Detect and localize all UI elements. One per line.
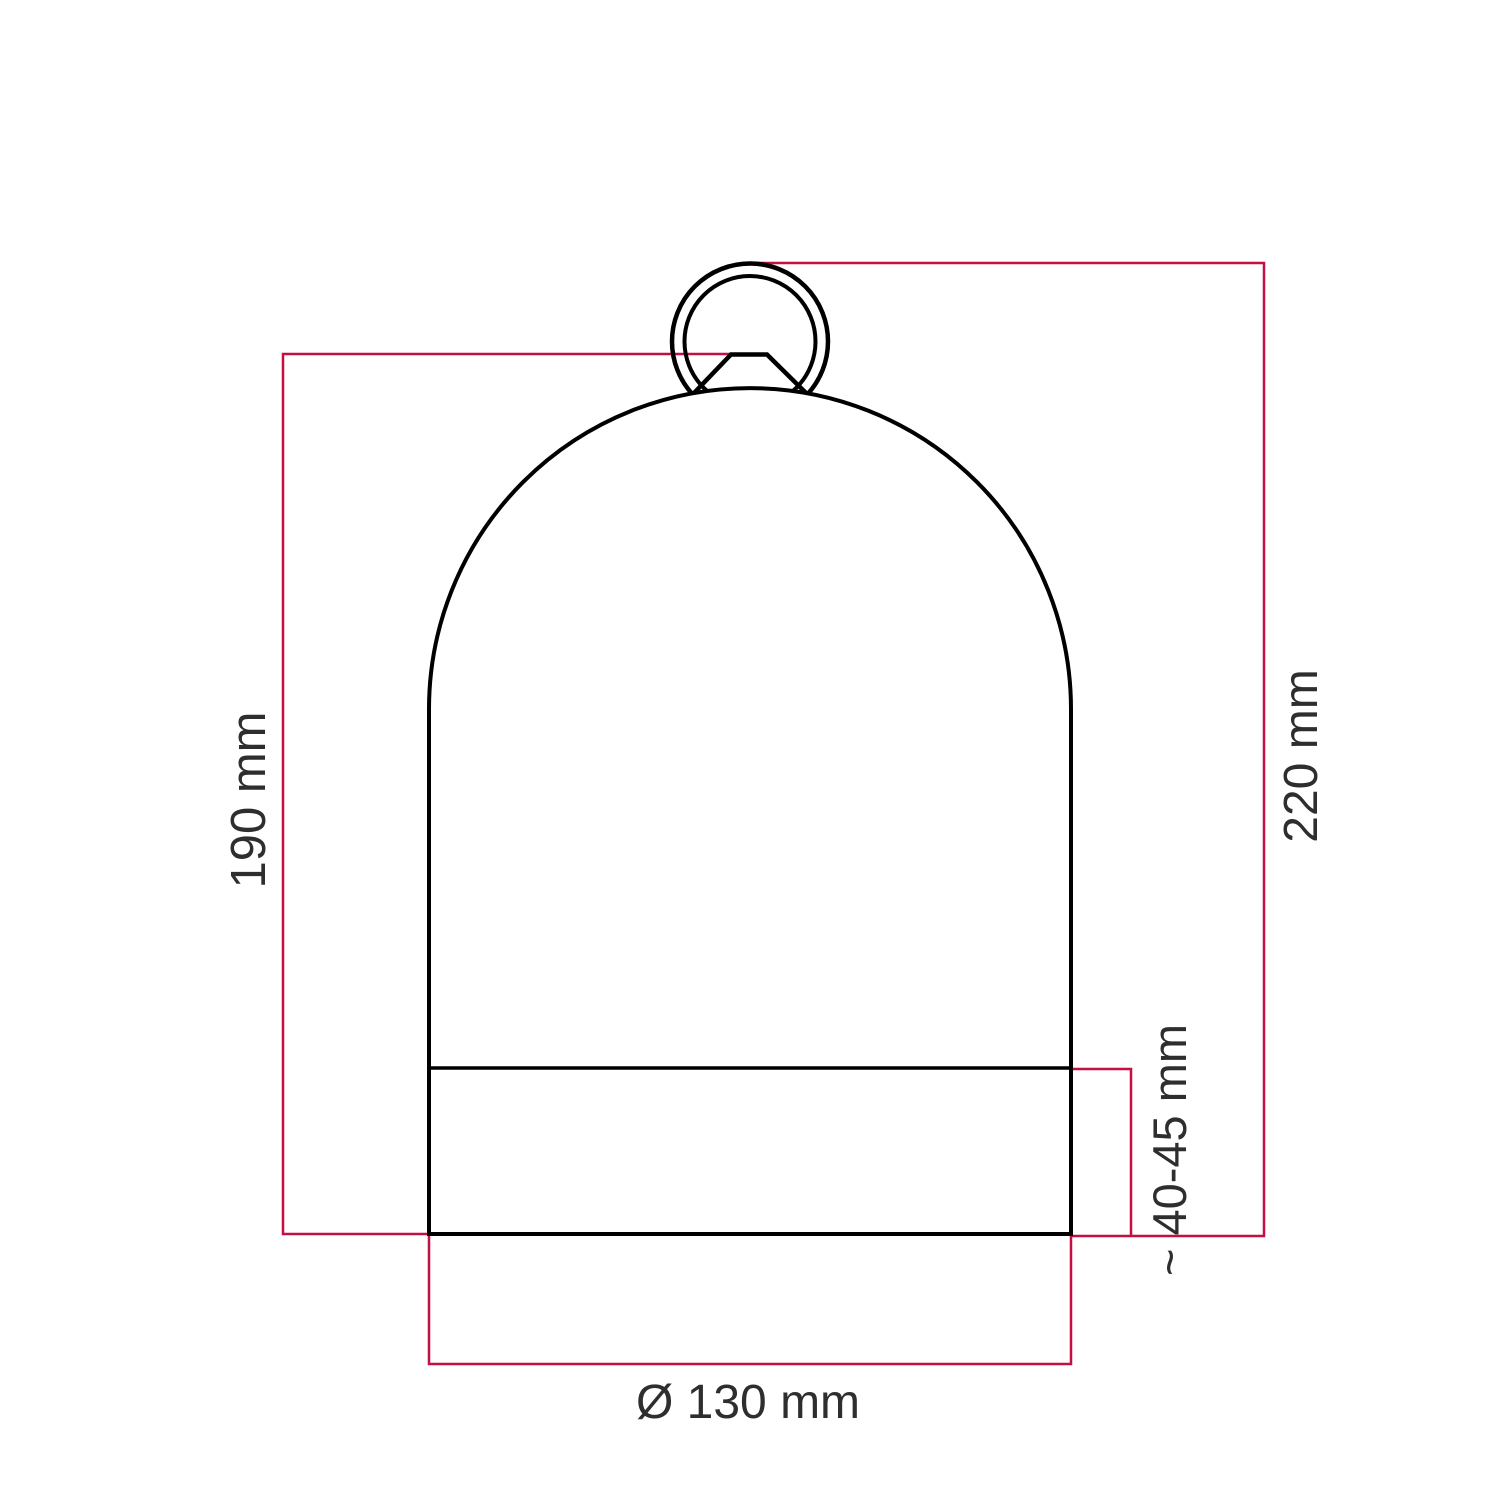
svg-text:190 mm: 190 mm bbox=[222, 711, 276, 888]
svg-text:~ 40-45 mm: ~ 40-45 mm bbox=[1143, 1024, 1196, 1276]
svg-text:220 mm: 220 mm bbox=[1275, 669, 1328, 842]
svg-text:Ø 130 mm: Ø 130 mm bbox=[636, 1376, 860, 1429]
